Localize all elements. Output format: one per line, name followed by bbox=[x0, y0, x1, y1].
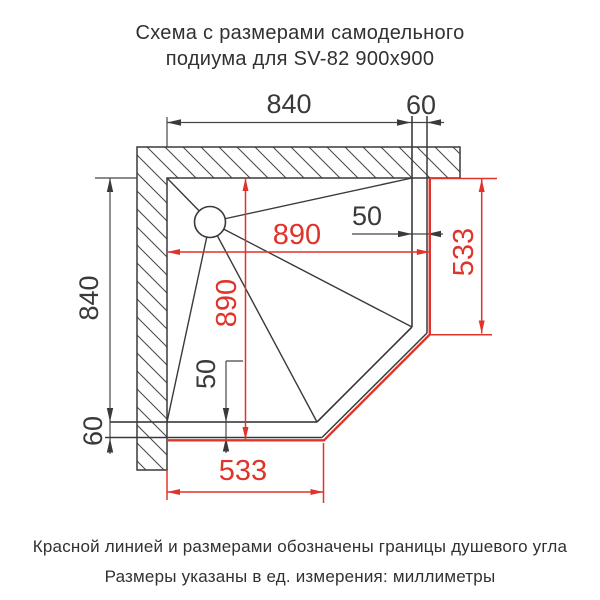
dim-overhang-bottom: 50 bbox=[191, 359, 221, 389]
dim-overhang-right: 50 bbox=[352, 201, 382, 231]
footer-line-1: Красной линией и размерами обозначены гр… bbox=[0, 532, 600, 562]
diagram-page: Схема с размерами самодельного подиума д… bbox=[0, 0, 600, 600]
dim-cut-side-bottom: 533 bbox=[219, 455, 267, 487]
drain-circle bbox=[195, 207, 226, 238]
footer-note: Красной линией и размерами обозначены гр… bbox=[0, 532, 600, 592]
footer-line-2: Размеры указаны в ед. измерения: миллиме… bbox=[0, 562, 600, 592]
dim-podium-width: 840 bbox=[266, 89, 311, 119]
dim-podium-depth: 840 bbox=[74, 275, 104, 320]
dim-cut-side-right: 533 bbox=[448, 228, 480, 276]
dim-shower-width: 890 bbox=[273, 219, 321, 251]
podium-drawing: 840 60 840 60 890 890 533 533 50 50 bbox=[0, 0, 600, 600]
dim-edge-top: 60 bbox=[406, 90, 436, 120]
dim-shower-depth: 890 bbox=[211, 279, 243, 327]
dim-edge-left: 60 bbox=[78, 416, 108, 446]
